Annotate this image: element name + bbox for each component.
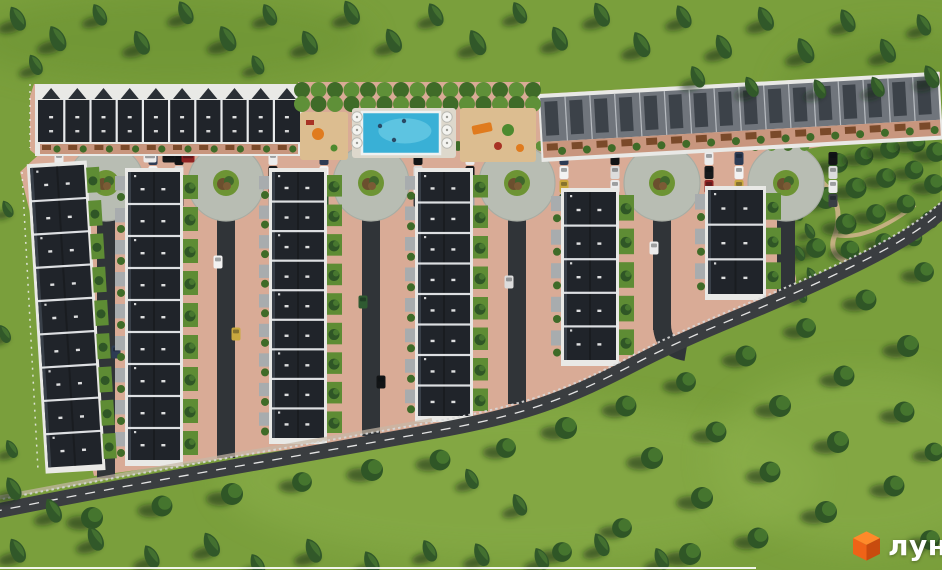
garden-tree-highlight: [772, 202, 778, 208]
parked-car: [829, 180, 838, 193]
roof-window: [141, 220, 145, 222]
garden-tree-highlight: [479, 274, 485, 280]
terrace: [405, 176, 416, 190]
parked-car: [735, 166, 744, 179]
roof-window: [597, 242, 601, 244]
pergola: [252, 145, 261, 150]
roof-window: [305, 423, 309, 425]
roof-window: [451, 279, 455, 281]
car-windshield: [612, 168, 618, 172]
round-tree-highlight: [618, 519, 631, 532]
roof-window: [75, 130, 79, 132]
pergola: [547, 143, 558, 151]
terrace-bush: [117, 257, 125, 265]
car-windshield: [736, 168, 742, 172]
backyard-bush: [132, 145, 139, 152]
round-tree-highlight: [890, 477, 903, 490]
roof-window: [206, 116, 210, 118]
driveway-lane: [217, 180, 235, 458]
roof-window: [44, 184, 48, 187]
roof-window: [285, 275, 289, 277]
round-tree-highlight: [368, 460, 382, 474]
terrace-bush: [407, 192, 415, 200]
unit-divider: [273, 98, 275, 142]
car-windshield: [215, 258, 221, 262]
garden-tree-highlight: [189, 183, 195, 189]
car-windshield: [736, 182, 742, 186]
round-tree-highlight: [558, 543, 571, 556]
terrace: [115, 400, 126, 414]
roof-window: [72, 282, 76, 285]
round-tree-highlight: [712, 423, 725, 436]
roof-panel: [594, 98, 609, 133]
chimney: [714, 193, 716, 195]
pergola: [721, 133, 732, 141]
terrace-bush: [261, 398, 269, 406]
play-equipment: [516, 144, 524, 152]
chimney: [134, 175, 136, 177]
hedge-tree: [443, 82, 459, 98]
parked-car: [829, 194, 838, 207]
chimney: [44, 304, 46, 306]
chimney: [134, 431, 136, 433]
backyard-bush: [211, 145, 218, 152]
roof-window: [70, 249, 74, 252]
terrace: [115, 272, 126, 286]
garden-tree-highlight: [625, 338, 631, 344]
roof-window: [161, 348, 165, 350]
swimmer: [402, 119, 406, 123]
chimney: [570, 195, 572, 197]
pergola: [121, 145, 130, 150]
roof-panel: [669, 94, 684, 129]
parked-car: [214, 256, 223, 269]
car-windshield: [360, 298, 366, 302]
lun-logo-text: лун: [888, 532, 942, 560]
roof-window: [52, 317, 56, 320]
terrace: [259, 265, 270, 278]
terrace-bush: [697, 213, 705, 221]
terrace: [115, 368, 126, 382]
round-tree-highlight: [686, 544, 700, 558]
pergola: [621, 139, 632, 147]
terrace: [259, 383, 270, 396]
roof-window: [75, 116, 79, 118]
hedge-tree: [311, 96, 327, 112]
pergola: [68, 145, 77, 150]
terrace-bush: [117, 353, 125, 361]
unit-divider: [271, 378, 325, 380]
roof-window: [68, 216, 72, 219]
roof-window: [743, 277, 747, 279]
pergola: [42, 145, 51, 150]
terrace-bush: [553, 248, 561, 256]
backyard-bush: [53, 145, 60, 152]
terrace: [551, 196, 562, 211]
roof-window: [305, 216, 309, 218]
roof-window: [721, 207, 725, 209]
roof-ridge: [297, 172, 299, 438]
round-tree-highlight: [228, 484, 242, 498]
umbrella-pole: [446, 116, 448, 118]
unit-divider: [89, 98, 91, 142]
roof-window: [66, 182, 70, 185]
roof-window: [49, 116, 53, 118]
roof-window: [48, 250, 52, 253]
terrace: [259, 235, 270, 248]
terrace-bush: [553, 315, 561, 323]
roof-panel: [644, 95, 659, 130]
roof-window: [78, 382, 82, 385]
roof-window: [285, 187, 289, 189]
play-equipment: [331, 145, 338, 152]
parked-car: [359, 296, 368, 309]
backyard-bush: [158, 145, 165, 152]
pergola: [745, 132, 756, 140]
roof-window: [161, 284, 165, 286]
car-windshield: [561, 182, 567, 186]
playground-left: [300, 112, 348, 160]
unit-divider: [417, 354, 471, 356]
car-windshield: [736, 154, 742, 158]
roof-window: [305, 246, 309, 248]
roof-window: [82, 448, 86, 451]
garden-tree-highlight: [333, 211, 339, 217]
umbrella-pole: [356, 116, 358, 118]
roof-window: [721, 242, 725, 244]
roof-window: [577, 242, 581, 244]
hedge-tree: [327, 82, 343, 98]
play-equipment: [494, 142, 502, 150]
roof-window: [305, 187, 309, 189]
unit-divider: [271, 260, 325, 262]
roof-window: [102, 116, 106, 118]
garden-tree-highlight: [333, 359, 339, 365]
car-windshield: [830, 182, 836, 186]
garden-tree-highlight: [189, 407, 195, 413]
roof-window: [577, 310, 581, 312]
roof-window: [154, 130, 158, 132]
backyard-bush: [80, 145, 87, 152]
image-edge: [0, 567, 756, 569]
unit-divider: [417, 201, 471, 203]
roof-window: [285, 116, 289, 118]
terrace-bush: [697, 248, 705, 256]
garden-tree-highlight: [189, 439, 195, 445]
terrace: [115, 208, 126, 222]
terrace-bush: [407, 222, 415, 230]
terrace-bush: [407, 314, 415, 322]
round-tree-highlight: [911, 162, 923, 174]
unit-divider: [271, 319, 325, 321]
unit-divider: [417, 262, 471, 264]
terrace-bush: [407, 405, 415, 413]
pergola: [225, 145, 234, 150]
roof-window: [577, 276, 581, 278]
unit-divider: [271, 407, 325, 409]
hedge-tree: [393, 82, 409, 98]
unit-divider: [417, 232, 471, 234]
car-windshield: [378, 378, 384, 382]
parked-car: [560, 166, 569, 179]
roof-window: [431, 401, 435, 403]
roof-window: [233, 116, 237, 118]
roof-window: [743, 207, 747, 209]
car-windshield: [561, 168, 567, 172]
garden-tree-highlight: [772, 272, 778, 278]
terrace: [405, 207, 416, 221]
car-windshield: [706, 154, 712, 158]
island-bush: [514, 182, 522, 190]
terrace-bush: [117, 417, 125, 425]
roof-window: [141, 252, 145, 254]
hedge-tree: [327, 96, 343, 112]
terrace: [259, 412, 270, 425]
roof-window: [161, 412, 165, 414]
terrace: [405, 268, 416, 282]
roof-panel: [718, 91, 733, 126]
terrace: [259, 176, 270, 189]
chimney: [278, 293, 280, 295]
terrace-bush: [407, 344, 415, 352]
terrace: [551, 330, 562, 345]
roof-window: [431, 279, 435, 281]
roof-window: [128, 116, 132, 118]
terrace: [695, 229, 706, 245]
unit-divider: [417, 293, 471, 295]
chimney: [36, 170, 38, 172]
round-tree-highlight: [682, 373, 695, 386]
pergola: [173, 145, 182, 150]
backyard-bush: [263, 145, 270, 152]
terrace-bush: [261, 309, 269, 317]
amenity-area: [294, 82, 541, 162]
terrace-bush: [261, 221, 269, 229]
garden-tree-highlight: [479, 213, 485, 219]
roof-panel: [693, 93, 708, 128]
masterplan-render: лун: [0, 0, 942, 570]
hedge-tree: [377, 82, 393, 98]
garden-tree-highlight: [479, 396, 485, 402]
roof-window: [305, 364, 309, 366]
roof-window: [259, 130, 263, 132]
unit-divider: [194, 98, 196, 142]
hedge-tree: [360, 82, 376, 98]
roof-window: [305, 305, 309, 307]
parked-car: [611, 166, 620, 179]
chimney: [278, 175, 280, 177]
terrace: [405, 359, 416, 373]
playground-right: [460, 108, 536, 162]
roof-window: [161, 380, 165, 382]
chimney: [134, 239, 136, 241]
pergola: [919, 122, 930, 130]
garden-tree-highlight: [189, 311, 195, 317]
round-tree-highlight: [622, 397, 635, 410]
pergola: [870, 125, 881, 133]
umbrella-pole: [356, 142, 358, 144]
unit-divider: [417, 323, 471, 325]
roof-window: [233, 130, 237, 132]
roof-window: [141, 284, 145, 286]
unit-divider: [417, 384, 471, 386]
roof-panel: [619, 97, 634, 132]
roof-window: [285, 246, 289, 248]
unit-divider: [127, 235, 181, 237]
roof-window: [577, 209, 581, 211]
roof-window: [431, 340, 435, 342]
roof-panel: [793, 87, 808, 122]
swimmer: [378, 124, 382, 128]
roof-window: [161, 220, 165, 222]
roof-window: [431, 370, 435, 372]
island-bush: [103, 182, 111, 190]
car-windshield: [706, 182, 712, 186]
terrace: [115, 176, 126, 190]
terrace: [259, 324, 270, 337]
roof-window: [76, 349, 80, 352]
terrace: [115, 336, 126, 350]
unit-divider: [271, 289, 325, 291]
roof-edge: [708, 190, 711, 294]
roof-window: [161, 188, 165, 190]
pergola: [147, 145, 156, 150]
terrace-bush: [553, 214, 561, 222]
car-windshield: [233, 330, 239, 334]
roof-ridge: [153, 172, 155, 460]
roof-window: [577, 343, 581, 345]
pergola: [596, 140, 607, 148]
roof-window: [597, 310, 601, 312]
unit-divider: [271, 348, 325, 350]
round-tree-highlight: [754, 529, 767, 542]
round-tree-highlight: [903, 196, 915, 208]
roof-window: [431, 248, 435, 250]
roof-panel: [544, 101, 559, 136]
round-tree-highlight: [834, 432, 848, 446]
terrace: [405, 329, 416, 343]
unit-divider: [271, 230, 325, 232]
roof-window: [141, 348, 145, 350]
chimney: [48, 370, 50, 372]
garden-tree-highlight: [333, 270, 339, 276]
hedge-tree: [311, 82, 327, 98]
terrace: [115, 240, 126, 254]
car-windshield: [706, 168, 712, 172]
car-windshield: [830, 154, 836, 158]
roof-window: [305, 394, 309, 396]
terrace-bush: [407, 283, 415, 291]
roof-window: [431, 187, 435, 189]
parked-car: [705, 152, 714, 165]
pergola: [820, 128, 831, 136]
unit-divider: [127, 203, 181, 205]
roof-window: [128, 130, 132, 132]
backyard-bush: [184, 145, 191, 152]
roof-window: [141, 380, 145, 382]
round-tree-highlight: [812, 239, 825, 252]
roof-window: [285, 216, 289, 218]
pergola: [696, 135, 707, 143]
roof-window: [597, 209, 601, 211]
roof-edge: [564, 192, 567, 360]
hedge-tree: [459, 82, 475, 98]
roof-panel: [569, 100, 584, 135]
round-tree-highlight: [920, 263, 933, 276]
round-tree-highlight: [847, 242, 859, 254]
roof-window: [285, 394, 289, 396]
unit-divider: [116, 98, 118, 142]
hedge-tree: [410, 82, 426, 98]
unit-divider: [707, 258, 764, 260]
umbrella-pole: [446, 129, 448, 131]
garden-tree-highlight: [189, 375, 195, 381]
roof-edge: [272, 172, 275, 438]
garden-tree-highlight: [189, 247, 195, 253]
unit-divider: [142, 98, 144, 142]
roof-panel: [892, 82, 907, 117]
unit-divider: [127, 299, 181, 301]
pergola: [845, 126, 856, 134]
roof-window: [49, 130, 53, 132]
terrace-bush: [407, 375, 415, 383]
masterplan-scene: [0, 0, 942, 570]
parked-car: [505, 276, 514, 289]
play-equipment: [306, 120, 314, 125]
roof-window: [451, 340, 455, 342]
terrace-bush: [117, 449, 125, 457]
round-tree-highlight: [900, 403, 913, 416]
garden-tree-highlight: [479, 304, 485, 310]
terrace-bush: [117, 289, 125, 297]
unit-divider: [707, 224, 764, 226]
round-tree-highlight: [766, 463, 779, 476]
roof-panel: [768, 89, 783, 124]
car-windshield: [612, 182, 618, 186]
lun-logo-cube-icon: [853, 531, 880, 561]
roof-window: [451, 187, 455, 189]
garden-tree-highlight: [333, 330, 339, 336]
hedge-tree: [294, 82, 310, 98]
roof-window: [743, 242, 747, 244]
roof-window: [58, 416, 62, 419]
roof-window: [154, 116, 158, 118]
terrace-bush: [261, 339, 269, 347]
chimney: [278, 411, 280, 413]
round-tree-highlight: [776, 396, 790, 410]
terrace: [551, 297, 562, 312]
play-equipment: [502, 124, 514, 136]
round-tree-highlight: [872, 205, 885, 218]
roof-window: [141, 444, 145, 446]
roof-window: [285, 335, 289, 337]
roof-window: [597, 276, 601, 278]
round-tree-highlight: [298, 473, 311, 486]
terrace: [405, 298, 416, 312]
roof-window: [60, 450, 64, 453]
terrace-bush: [117, 385, 125, 393]
chimney: [570, 262, 572, 264]
hedge-tree: [492, 82, 508, 98]
bottom-white-edge: [0, 567, 756, 569]
unit-divider: [563, 292, 617, 294]
roof-ridge: [735, 190, 737, 294]
roof-ridge: [589, 192, 591, 360]
terrace-bush: [117, 321, 125, 329]
garden-tree-highlight: [189, 279, 195, 285]
round-tree-highlight: [904, 336, 918, 350]
round-tree-highlight: [158, 497, 171, 510]
